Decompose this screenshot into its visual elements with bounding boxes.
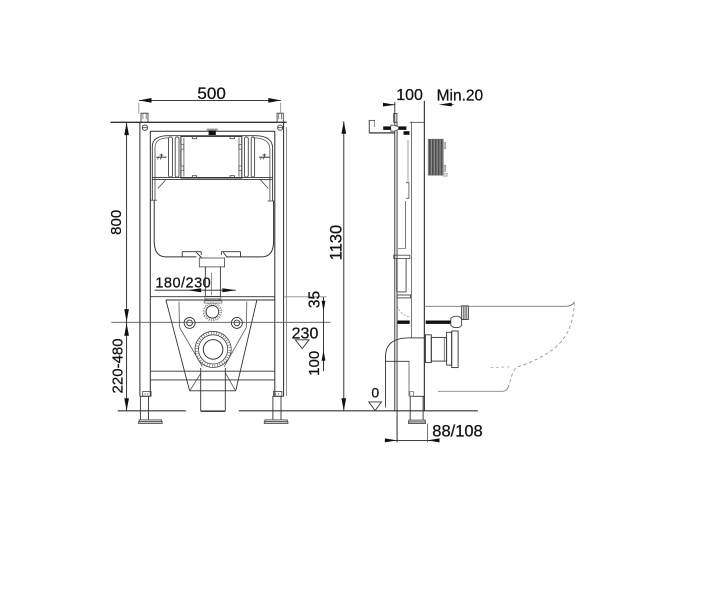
svg-text:100: 100 xyxy=(306,351,323,376)
svg-text:220-480: 220-480 xyxy=(110,338,127,393)
svg-text:180/230: 180/230 xyxy=(155,276,211,292)
svg-text:100: 100 xyxy=(396,87,423,104)
svg-text:0: 0 xyxy=(371,385,379,401)
svg-text:Min.20: Min.20 xyxy=(437,87,484,104)
svg-text:500: 500 xyxy=(197,84,225,103)
svg-text:1130: 1130 xyxy=(328,225,346,260)
svg-text:35: 35 xyxy=(307,291,324,308)
svg-text:88/108: 88/108 xyxy=(432,423,482,441)
svg-text:800: 800 xyxy=(108,210,125,235)
